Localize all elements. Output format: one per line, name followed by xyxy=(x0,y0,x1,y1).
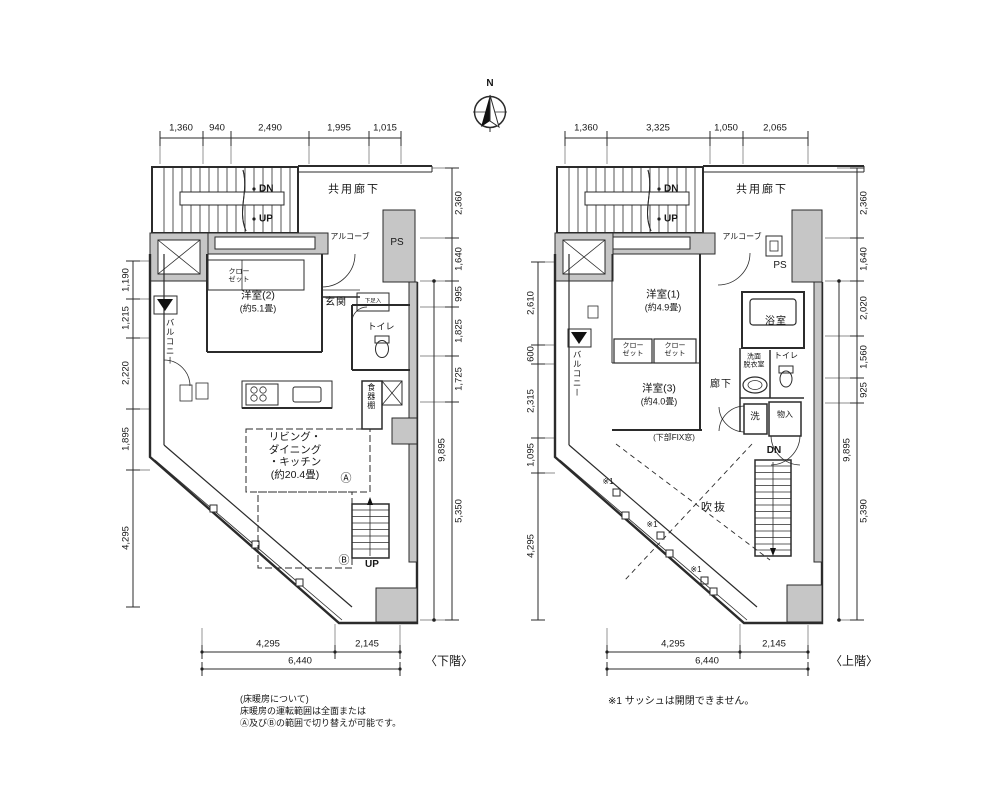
bath-label: 浴室 xyxy=(765,316,787,328)
dim-label: 940 xyxy=(209,122,225,133)
dim-label: 2,610 xyxy=(525,291,536,315)
floor-plan-drawing xyxy=(0,0,999,801)
sash-note: ※1 サッシュは開閉できません。 xyxy=(608,692,754,707)
entrance-label: 玄関 xyxy=(325,297,347,309)
dim-label: 1,825 xyxy=(453,319,464,343)
dim-label: 2,065 xyxy=(763,122,787,133)
dim-label: 1,015 xyxy=(373,122,397,133)
cupboard-label: 食器棚 xyxy=(366,383,376,410)
hallway-label: 廊下 xyxy=(710,379,732,391)
room2-size-label: (約5.1畳) xyxy=(240,304,277,315)
room1-size-label: (約4.9畳) xyxy=(645,303,682,314)
note-line: Ⓐ及びⒷの範囲で切り替えが可能です。 xyxy=(240,716,401,729)
compass-north-label: N xyxy=(486,78,493,90)
dim-label: 2,220 xyxy=(120,361,131,385)
dim-label: 6,440 xyxy=(288,655,312,666)
internal-stair-dn-label: DN xyxy=(767,445,781,457)
dim-label: 2,145 xyxy=(762,638,786,649)
dim-label: 1,360 xyxy=(169,122,193,133)
upper-floor-label: 〈上階〉 xyxy=(830,654,878,668)
ldk-label: リビング・ ダイニング ・キッチン (約20.4畳) xyxy=(269,431,322,481)
room3-name-label: 洋室(3) xyxy=(642,383,676,396)
shoe-box-label: 下足入 xyxy=(365,299,382,306)
dim-label: 925 xyxy=(858,382,869,398)
toilet-label: トイレ xyxy=(774,351,798,361)
zone-a-label: Ⓐ xyxy=(341,472,352,485)
toilet-label: トイレ xyxy=(367,322,394,333)
dim-label: 600 xyxy=(525,346,536,362)
ps-label: PS xyxy=(390,237,403,249)
void-label: 吹抜 xyxy=(701,501,727,514)
dim-label: 1,560 xyxy=(858,345,869,369)
dim-label: 4,295 xyxy=(525,534,536,558)
dim-label: 1,190 xyxy=(120,268,131,292)
dim-label: 2,490 xyxy=(258,122,282,133)
lower-floor-label: 〈下階〉 xyxy=(425,654,473,668)
balcony-label: バルコニー xyxy=(572,350,582,398)
dim-label: 2,145 xyxy=(355,638,379,649)
washroom-label: 洗面 脱衣室 xyxy=(744,354,765,371)
closet-label: クロー ゼット xyxy=(665,343,686,360)
fix-window-label: (下部FIX窓) xyxy=(653,433,695,443)
dim-label: 2,360 xyxy=(858,191,869,215)
zone-b-label: Ⓑ xyxy=(339,554,350,567)
lower-building xyxy=(150,166,432,623)
compass-icon xyxy=(473,95,507,132)
dim-label: 1,725 xyxy=(453,367,464,391)
dim-label: 3,325 xyxy=(646,122,670,133)
stair-dn-label: DN xyxy=(259,184,273,195)
sash-note-marker: ※1 xyxy=(690,565,701,575)
dim-label: 1,360 xyxy=(574,122,598,133)
dim-label: 4,295 xyxy=(256,638,280,649)
dim-label: 4,295 xyxy=(661,638,685,649)
dim-label: 1,640 xyxy=(858,247,869,271)
washer-label: 洗 xyxy=(750,411,760,422)
closet-label: クロー ゼット xyxy=(229,269,250,286)
storage-label: 物入 xyxy=(777,410,793,420)
closet-label: クロー ゼット xyxy=(623,343,644,360)
ps-label: PS xyxy=(773,260,786,272)
dim-label: 4,295 xyxy=(120,526,131,550)
dim-label: 6,440 xyxy=(695,655,719,666)
dim-label: 1,050 xyxy=(714,122,738,133)
upper-building xyxy=(555,166,864,623)
dim-label: 1,095 xyxy=(525,443,536,467)
dim-label: 2,360 xyxy=(453,191,464,215)
dim-label: 995 xyxy=(453,286,464,302)
dim-label: 9,895 xyxy=(841,438,852,462)
dim-label: 1,895 xyxy=(120,427,131,451)
corridor-label: 共用廊下 xyxy=(328,183,380,196)
stair-dn-label: DN xyxy=(664,184,678,195)
alcove-label: アルコーブ xyxy=(722,232,761,242)
dim-label: 1,215 xyxy=(120,306,131,330)
dim-label: 1,995 xyxy=(327,122,351,133)
dim-label: 5,390 xyxy=(858,499,869,523)
sash-note-marker: ※1 xyxy=(602,477,613,487)
dim-label: 5,350 xyxy=(453,499,464,523)
floor-plan-sheet: N 1,360 940 2,490 1,995 1,015 1,190 1,21… xyxy=(0,0,999,801)
corridor-label: 共用廊下 xyxy=(736,183,788,196)
alcove-label: アルコーブ xyxy=(330,232,369,242)
room1-name-label: 洋室(1) xyxy=(646,289,680,302)
dim-label: 2,020 xyxy=(858,296,869,320)
room3-size-label: (約4.0畳) xyxy=(641,397,678,408)
internal-stair-up-label: UP xyxy=(365,559,379,571)
dim-label: 1,640 xyxy=(453,247,464,271)
balcony-label: バルコニー xyxy=(165,318,175,366)
dim-label: 9,895 xyxy=(436,438,447,462)
stair-up-label: UP xyxy=(664,214,678,225)
dim-label: 2,315 xyxy=(525,389,536,413)
sash-note-marker: ※1 xyxy=(646,520,657,530)
stair-up-label: UP xyxy=(259,214,273,225)
room2-name-label: 洋室(2) xyxy=(241,290,275,303)
